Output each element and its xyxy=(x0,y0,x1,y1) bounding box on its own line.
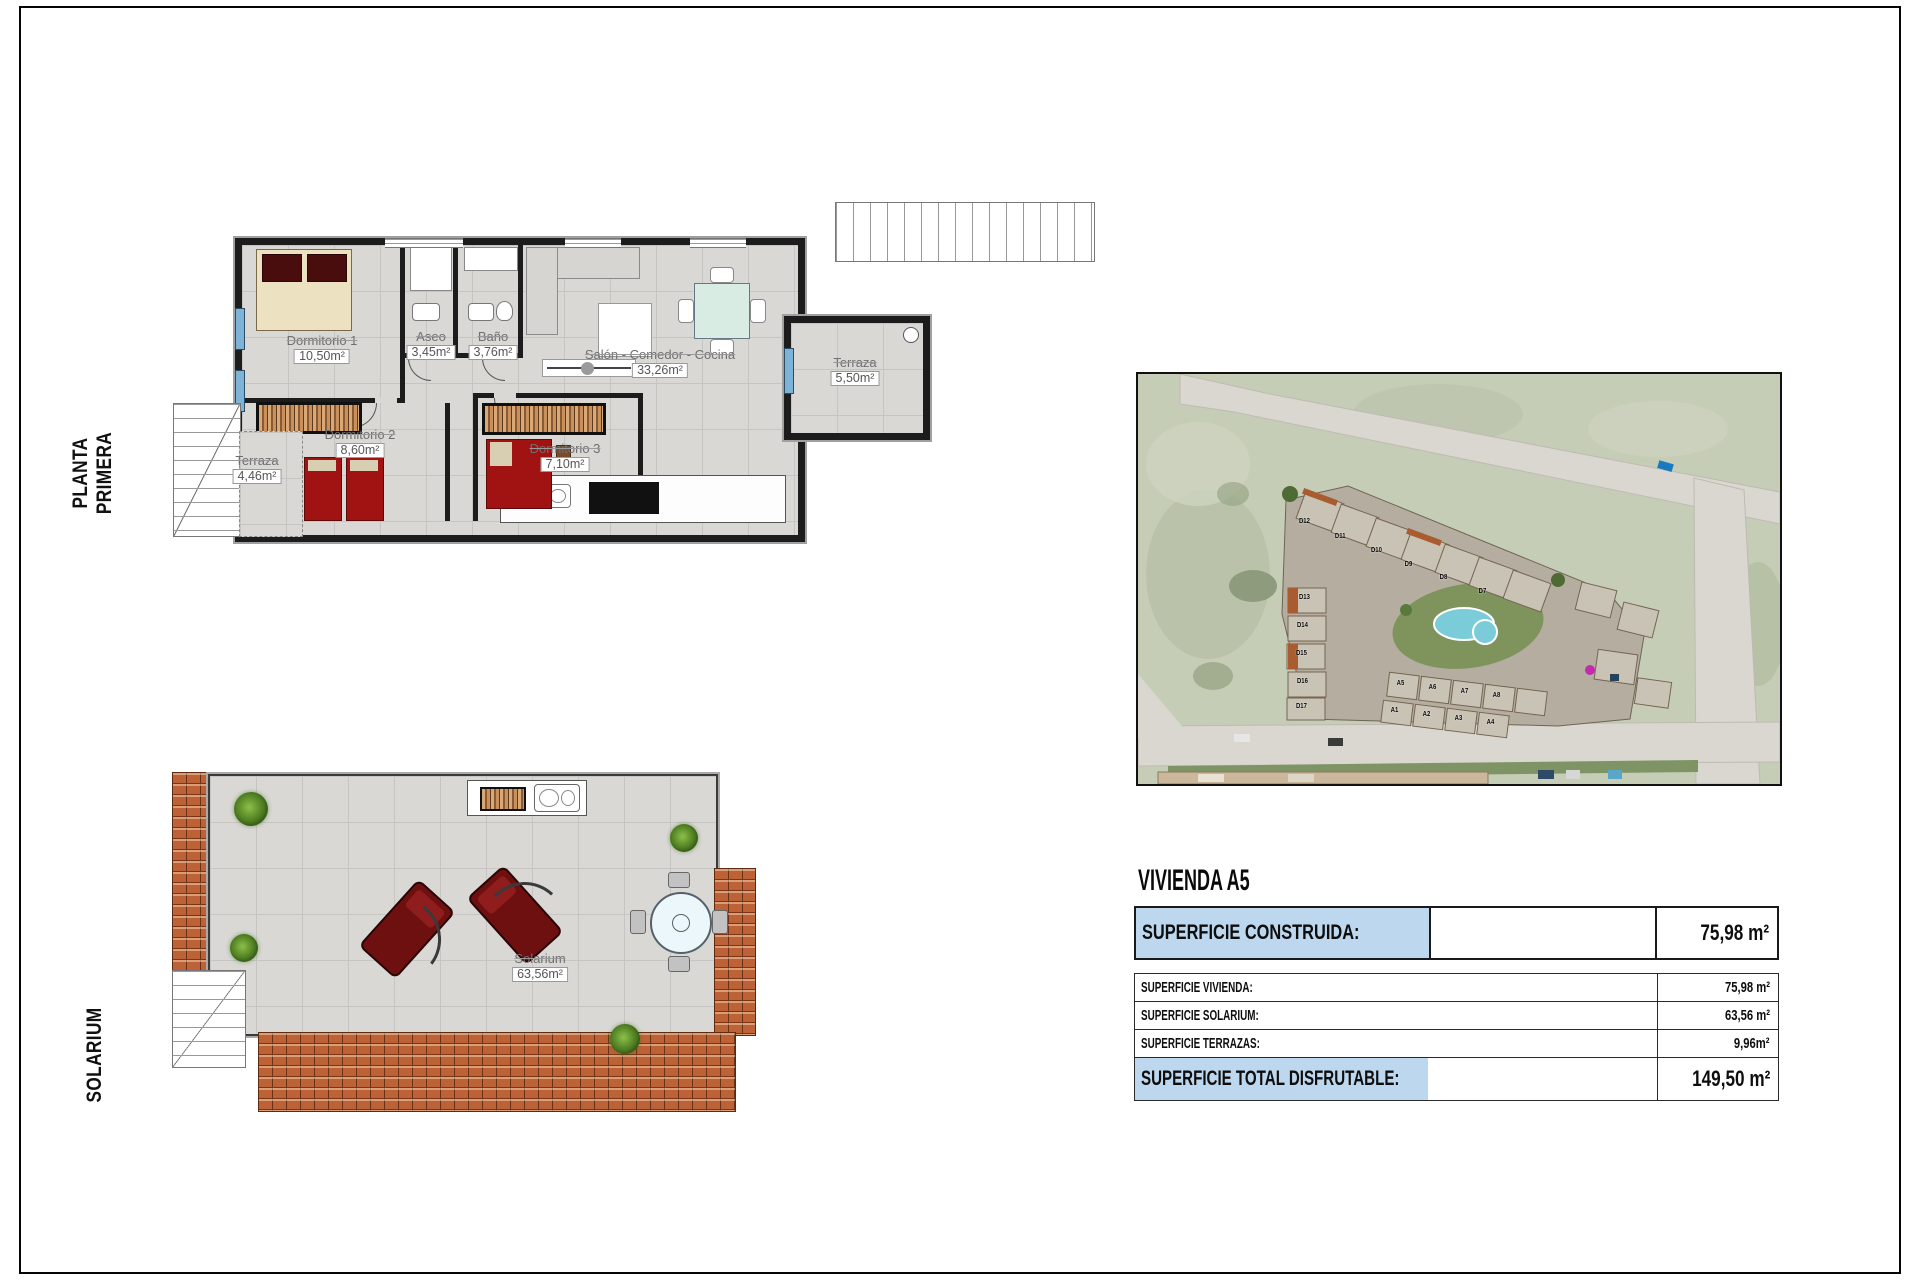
detail-label-cell: SUPERFICIE SOLARIUM: xyxy=(1135,1002,1657,1029)
built-surface-value-cell: 75,98 m² xyxy=(1657,908,1777,958)
map-unit-label: D10 xyxy=(1371,547,1382,554)
bed-single xyxy=(346,457,384,521)
wall xyxy=(518,245,523,355)
plant xyxy=(234,792,268,826)
shower-tray xyxy=(410,247,452,291)
sink-bowl xyxy=(550,489,566,503)
dining-table xyxy=(694,283,750,339)
pillow xyxy=(307,254,347,282)
chair xyxy=(668,956,690,972)
detail-row: SUPERFICIE TERRAZAS: 9,96m² xyxy=(1135,1030,1778,1058)
grill xyxy=(480,787,526,811)
door-arc xyxy=(482,358,505,381)
detail-label-cell: SUPERFICIE VIVIENDA: xyxy=(1135,974,1657,1001)
map-unit-label: A2 xyxy=(1423,711,1431,718)
wall xyxy=(473,393,478,521)
side-label-solarium: SOLARIUM xyxy=(83,1006,107,1104)
plant xyxy=(670,824,698,852)
door-opening xyxy=(375,398,397,403)
map-unit-label: D15 xyxy=(1296,650,1307,657)
bed-double xyxy=(256,249,352,331)
sink xyxy=(534,784,580,812)
chair xyxy=(712,910,728,934)
solarium-plan: Solarium 63,56m² xyxy=(172,772,862,1144)
window xyxy=(784,348,794,394)
first-floor-plan: Terraza 5,50m² Terraza 4,46m² Dormitorio… xyxy=(235,198,1095,548)
chair xyxy=(678,299,694,323)
site-map-image xyxy=(1138,374,1780,784)
room-label-terraza-left: Terraza 4,46m² xyxy=(233,454,282,484)
bed-single xyxy=(304,457,342,521)
map-unit-label: D16 xyxy=(1297,678,1308,685)
total-value-cell: 149,50 m² xyxy=(1657,1058,1778,1100)
detail-table: SUPERFICIE VIVIENDA: 75,98 m² SUPERFICIE… xyxy=(1134,973,1779,1101)
room-label-dormitorio1: Dormitorio 1 10,50m² xyxy=(287,334,358,364)
toilet xyxy=(496,301,513,321)
wardrobe xyxy=(482,403,606,435)
room-label-bano: Baño 3,76m² xyxy=(469,330,518,360)
plant xyxy=(610,1024,640,1054)
spacer-cell xyxy=(1428,1058,1657,1100)
stove xyxy=(589,482,659,514)
map-unit-label: D8 xyxy=(1440,574,1448,581)
round-table xyxy=(650,892,712,954)
map-unit-label: A6 xyxy=(1429,684,1437,691)
detail-row: SUPERFICIE SOLARIUM: 63,56 m² xyxy=(1135,1002,1778,1030)
roof-tiles-bottom xyxy=(258,1032,736,1112)
unit-title: VIVIENDA A5 xyxy=(1138,864,1324,898)
room-label-dormitorio2: Dormitorio 2 8,60m² xyxy=(325,428,396,458)
bathtub xyxy=(464,247,518,271)
map-unit-label: A1 xyxy=(1391,707,1399,714)
pillow xyxy=(262,254,302,282)
built-surface-label-cell: SUPERFICIE CONSTRUIDA: xyxy=(1136,908,1431,958)
window xyxy=(690,238,746,248)
roof-tiles-right xyxy=(714,868,756,1036)
total-label-cell: SUPERFICIE TOTAL DISFRUTABLE: xyxy=(1135,1058,1428,1100)
map-unit-label: D7 xyxy=(1479,588,1487,595)
map-unit-label: A8 xyxy=(1493,692,1501,699)
built-surface-row: SUPERFICIE CONSTRUIDA: 75,98 m² xyxy=(1134,906,1779,960)
map-unit-label: D11 xyxy=(1335,533,1346,540)
map-unit-label: D13 xyxy=(1299,594,1310,601)
map-unit-label: D14 xyxy=(1297,622,1308,629)
map-unit-label: A4 xyxy=(1487,719,1495,726)
pillow xyxy=(490,442,512,466)
sink-bowl xyxy=(561,790,575,806)
room-label-solarium: Solarium 63,56m² xyxy=(512,952,568,982)
sink xyxy=(412,303,440,321)
window xyxy=(385,238,463,248)
room-label-terraza-right: Terraza 5,50m² xyxy=(831,356,880,386)
detail-value-cell: 75,98 m² xyxy=(1657,974,1778,1001)
room-label-salon: Salón - Comedor - Cocina 33,26m² xyxy=(585,348,735,378)
solarium-stair xyxy=(172,970,246,1068)
exterior-stair-top xyxy=(835,202,1095,262)
window xyxy=(235,308,245,350)
spacer-cell xyxy=(1431,908,1657,958)
wall xyxy=(445,403,450,521)
chair xyxy=(668,872,690,888)
window xyxy=(565,238,621,248)
door-arc xyxy=(408,358,431,381)
map-unit-label: D9 xyxy=(1405,561,1413,568)
table-gap xyxy=(1134,960,1779,973)
table-center xyxy=(672,914,690,932)
surface-table: SUPERFICIE CONSTRUIDA: 75,98 m² SUPERFIC… xyxy=(1134,906,1779,1101)
roof-tiles-left xyxy=(172,772,212,972)
floor-plan-main-body xyxy=(235,238,805,542)
wall xyxy=(400,245,405,403)
sofa-corner xyxy=(526,247,558,335)
map-unit-label: A3 xyxy=(1455,715,1463,722)
chair xyxy=(710,267,734,283)
site-map: D12 D11 D10 D9 D8 D7 D13 D14 D15 D16 D17… xyxy=(1136,372,1782,786)
chair xyxy=(630,910,646,934)
detail-label-cell: SUPERFICIE TERRAZAS: xyxy=(1135,1030,1657,1057)
pillow xyxy=(308,460,336,471)
solarium-deck xyxy=(208,774,718,1036)
room-label-dormitorio3: Dormitorio 3 7,10m² xyxy=(530,442,601,472)
pillow xyxy=(350,460,378,471)
room-label-aseo: Aseo 3,45m² xyxy=(407,330,456,360)
exterior-stair-bottom xyxy=(173,403,241,537)
map-unit-label: A5 xyxy=(1397,680,1405,687)
total-row: SUPERFICIE TOTAL DISFRUTABLE: 149,50 m² xyxy=(1135,1058,1778,1100)
map-unit-label: D12 xyxy=(1299,518,1310,525)
plant xyxy=(230,934,258,962)
sink-bowl xyxy=(539,789,559,807)
detail-value-cell: 63,56 m² xyxy=(1657,1002,1778,1029)
map-unit-label: D17 xyxy=(1296,703,1307,710)
detail-row: SUPERFICIE VIVIENDA: 75,98 m² xyxy=(1135,974,1778,1002)
chair xyxy=(750,299,766,323)
plan-sheet: { "sheet": { "side_labels": { "planta_pr… xyxy=(0,0,1920,1280)
map-unit-label: A7 xyxy=(1461,688,1469,695)
solarium-counter xyxy=(467,780,587,816)
planter-pot xyxy=(903,327,919,343)
detail-value-cell: 9,96m² xyxy=(1657,1030,1778,1057)
sink xyxy=(468,303,494,321)
side-label-planta-primera: PLANTA PRIMERA xyxy=(69,403,117,542)
